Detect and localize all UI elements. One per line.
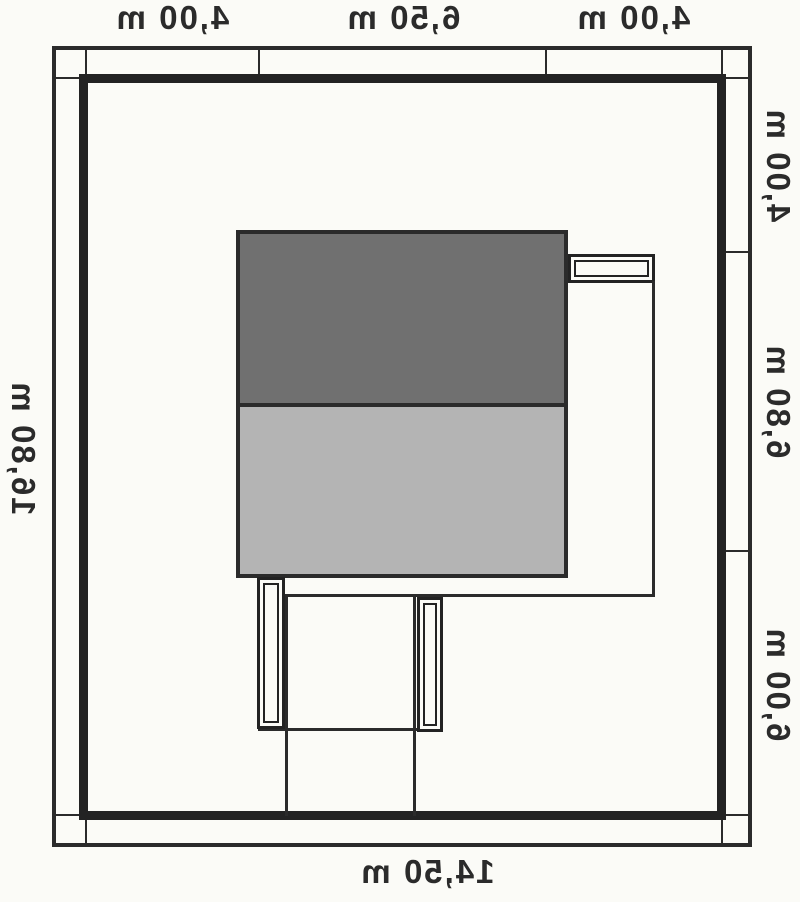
terrace-inner-outline	[574, 260, 649, 277]
low-wall-b-inner-outline	[423, 603, 437, 726]
dimension-tick	[722, 77, 752, 79]
walkway-line-vertical-terrace	[652, 281, 655, 597]
low-wall-b	[417, 597, 443, 732]
walkway-line-horizontal	[285, 594, 655, 597]
dimension-tick	[722, 550, 752, 552]
dim-right-1: 4,00 m	[760, 85, 796, 245]
dimension-tick	[52, 77, 82, 79]
terrace	[568, 254, 655, 283]
driveway-line-right	[413, 594, 416, 816]
dim-right-2: 6,80 m	[760, 321, 796, 481]
driveway-line-left	[285, 594, 288, 816]
site-plan: 4,00 m 6,50 m 4,00 m 4,00 m 6,80 m 6,00 …	[0, 0, 800, 902]
dim-right-3: 6,00 m	[760, 604, 796, 764]
dim-top-3: 4,00 m	[92, 0, 252, 36]
dim-bottom-total: 14,50 m	[347, 854, 507, 890]
dim-top-2: 6,50 m	[323, 0, 483, 36]
dimension-tick	[722, 251, 752, 253]
dim-left-total: 16,80 m	[5, 368, 41, 528]
house-footprint	[236, 230, 568, 578]
dimension-tick	[722, 814, 752, 816]
dimension-tick	[52, 814, 82, 816]
driveway-cross-line	[258, 728, 440, 731]
roof-lower-half	[240, 407, 564, 574]
roof-upper-half	[240, 234, 564, 403]
dim-top-1: 4,00 m	[553, 0, 713, 36]
low-wall-a-inner-outline	[263, 583, 279, 723]
low-wall-a	[257, 577, 285, 729]
